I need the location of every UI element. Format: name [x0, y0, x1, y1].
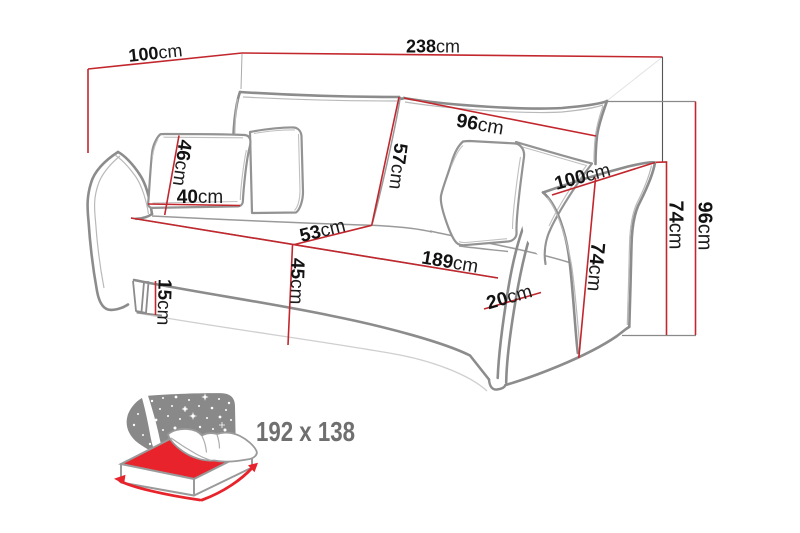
svg-text:96cm: 96cm — [694, 202, 716, 251]
svg-text:15cm: 15cm — [152, 279, 175, 326]
svg-text:40cm: 40cm — [177, 187, 223, 208]
svg-text:192 x 138: 192 x 138 — [256, 416, 355, 447]
svg-text:45cm: 45cm — [285, 258, 308, 305]
svg-text:238cm: 238cm — [406, 37, 460, 57]
svg-text:74cm: 74cm — [582, 242, 608, 293]
svg-text:74cm: 74cm — [665, 201, 687, 250]
